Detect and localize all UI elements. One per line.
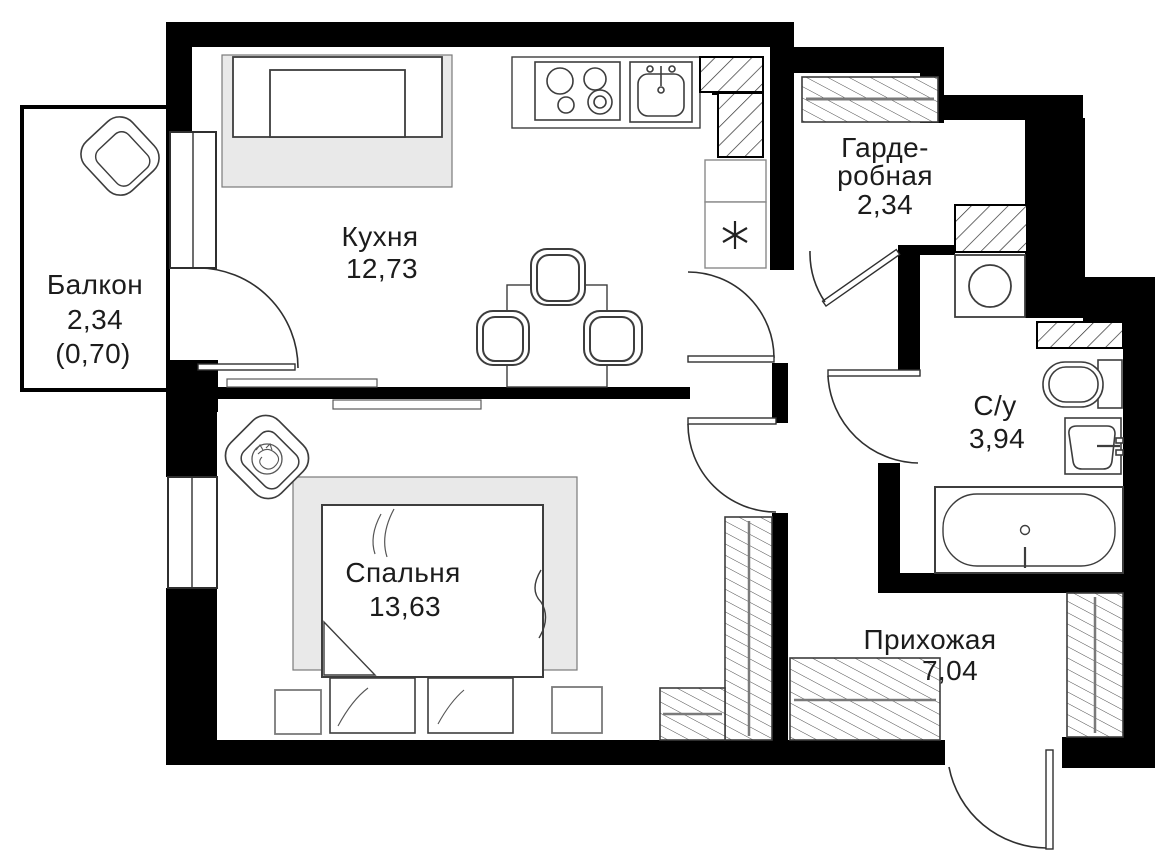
closet-icon xyxy=(790,658,940,740)
bench-icon xyxy=(330,678,415,733)
fridge-icon xyxy=(705,202,766,268)
vent-shaft-icon xyxy=(1037,322,1123,348)
wall-bathroom-bottom xyxy=(878,573,1123,593)
wall-step-top-right xyxy=(930,95,1083,120)
wall-kitchen-bedroom xyxy=(166,387,690,399)
nightstand-icon xyxy=(275,690,321,734)
balcony-door-arc xyxy=(198,268,298,368)
balcony-area: 2,34 xyxy=(67,305,123,335)
balcony-label: Балкон xyxy=(47,270,143,300)
chair-icon xyxy=(584,311,642,365)
bathroom-door-leaf xyxy=(828,370,920,376)
kitchen-door-arc xyxy=(688,272,774,358)
nightstand-icon xyxy=(552,687,602,733)
balcony-area-note: (0,70) xyxy=(55,339,131,369)
closet-icon xyxy=(1067,593,1123,737)
toilet-icon xyxy=(1043,360,1122,408)
vent-shaft-icon xyxy=(955,205,1027,252)
hallway-label: Прихожая xyxy=(864,625,997,655)
floor-plan: Балкон 2,34 (0,70) Кухня 12,73 Гарде- ро… xyxy=(0,0,1155,861)
vent-shaft-icon xyxy=(718,93,763,157)
entrance-door-arc xyxy=(949,767,1046,848)
wardrobe-label-line1: Гарде- xyxy=(841,133,929,163)
bedroom-furniture xyxy=(218,408,772,740)
bedroom-door-arc xyxy=(688,424,776,512)
sill-kitchen-side xyxy=(227,379,377,387)
kitchen-label: Кухня xyxy=(342,222,419,252)
wardrobe-door-leaf xyxy=(823,250,900,307)
wardrobe-door-arc xyxy=(810,251,825,302)
wall-top xyxy=(168,22,792,47)
bathroom-door-arc xyxy=(828,376,918,463)
wardrobe-area: 2,34 xyxy=(857,190,913,220)
bathroom-area: 3,94 xyxy=(969,424,1025,454)
sofa-icon xyxy=(233,57,442,137)
kitchen-sink-icon xyxy=(630,62,692,122)
kitchen-furniture xyxy=(222,55,766,387)
chair-icon xyxy=(531,249,585,305)
bathtub-icon xyxy=(935,487,1123,573)
chair-icon xyxy=(477,311,529,365)
closet-icon xyxy=(725,517,772,740)
bedroom-door-leaf xyxy=(688,418,776,424)
wardrobe-room-furniture xyxy=(802,77,938,122)
kitchen-cabinet xyxy=(705,160,766,202)
wall-bottom-right-block xyxy=(1062,737,1155,768)
wall-left-bedroom-lower xyxy=(166,588,217,740)
entrance-door-leaf xyxy=(1046,750,1053,849)
wall-bottom xyxy=(166,740,945,765)
wall-bedroom-hall xyxy=(772,513,788,740)
vent-shaft-icon xyxy=(700,57,763,92)
wall-right-upper xyxy=(1025,118,1085,318)
washbasin-icon xyxy=(1065,418,1123,474)
balcony-door-leaf xyxy=(198,364,295,370)
wall-bathroom-left xyxy=(898,245,920,373)
washing-machine-icon xyxy=(955,255,1025,317)
wardrobe-label-line2: робная xyxy=(837,161,933,191)
bathroom-label: С/у xyxy=(973,391,1016,421)
wall-left-bedroom-upper xyxy=(166,412,217,477)
wall-kitchen-wardrobe xyxy=(770,22,794,270)
wall-pillar-kitchen-hall xyxy=(772,363,788,423)
hallway-area: 7,04 xyxy=(922,656,978,686)
bedroom-area: 13,63 xyxy=(369,592,441,622)
bedroom-label: Спальня xyxy=(345,558,460,588)
wall-right xyxy=(1123,320,1155,738)
closet-icon xyxy=(660,688,725,740)
wall-bathtub-pillar xyxy=(878,463,900,575)
kitchen-door-leaf xyxy=(688,356,774,362)
stove-icon xyxy=(535,62,620,120)
bench-icon xyxy=(428,678,513,733)
wall-bathroom-top-stub xyxy=(898,245,955,255)
sill-bedroom-side xyxy=(333,400,481,409)
wall-step-right xyxy=(1083,277,1155,322)
kitchen-area: 12,73 xyxy=(346,254,418,284)
